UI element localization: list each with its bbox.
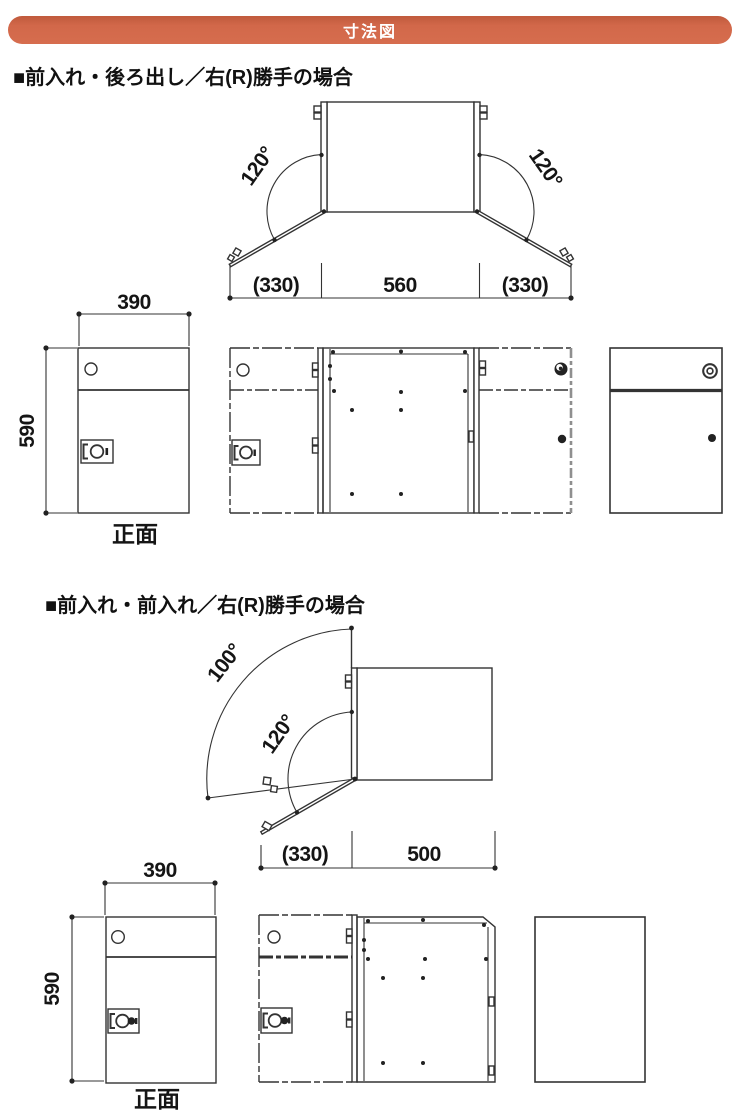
screw-dots xyxy=(362,918,488,1065)
knob-dot xyxy=(558,435,566,443)
dim-330: (330) xyxy=(282,843,329,866)
s2-front-view: 390 590 正面 xyxy=(41,859,218,1111)
open-door-panel xyxy=(357,917,495,1082)
keyhole-icon xyxy=(555,363,568,376)
front-door-closed xyxy=(352,668,358,778)
handle-lock xyxy=(108,1009,139,1033)
angle-label-right: 120° xyxy=(524,145,567,192)
s1-front-view: 390 590 正面 xyxy=(16,291,192,547)
back-door-open-120 xyxy=(476,210,571,266)
front-caption: 正面 xyxy=(112,521,158,547)
dim-width: 390 xyxy=(117,291,151,314)
dim-width: 390 xyxy=(143,859,177,882)
keyhole-icon xyxy=(703,364,717,378)
open-door-panel xyxy=(323,348,474,513)
dim-560: 560 xyxy=(383,274,417,297)
cylinder-lock xyxy=(85,363,97,375)
cylinder-lock xyxy=(112,931,125,944)
s1-back-view xyxy=(610,348,722,513)
handle-lock xyxy=(81,440,113,463)
dim-330-right: (330) xyxy=(502,274,549,297)
dimension-sheet: 寸法図 ■前入れ・後ろ出し／右(R)勝手の場合 ■前入れ・前入れ／右(R)勝手の… xyxy=(0,0,740,1111)
screw-dots xyxy=(328,350,467,497)
dim-height: 590 xyxy=(16,414,39,448)
s1-top-view: 120° 120° (330) 560 (330) xyxy=(227,102,573,301)
dim-height: 590 xyxy=(41,972,64,1006)
box-outline xyxy=(78,348,189,513)
s2-top-view: 100° 120° (330) 500 xyxy=(203,626,498,871)
technical-drawing: 120° 120° (330) 560 (330) 390 590 xyxy=(0,0,740,1111)
s2-back-view xyxy=(535,917,645,1082)
knob-dot xyxy=(708,434,716,442)
angle-label-left: 120° xyxy=(236,143,279,190)
box-outline xyxy=(535,917,645,1082)
angle-label-100: 100° xyxy=(203,640,247,687)
front-caption: 正面 xyxy=(134,1086,180,1111)
front-door-open-120 xyxy=(229,210,324,266)
outer-door-open-100 xyxy=(208,779,355,798)
handle-lock xyxy=(232,440,260,465)
s2-unfolded-view xyxy=(259,915,495,1082)
dim-330-left: (330) xyxy=(253,274,300,297)
s1-unfolded-view xyxy=(230,348,571,513)
handle-lock xyxy=(261,1008,292,1033)
dim-500: 500 xyxy=(407,843,441,866)
